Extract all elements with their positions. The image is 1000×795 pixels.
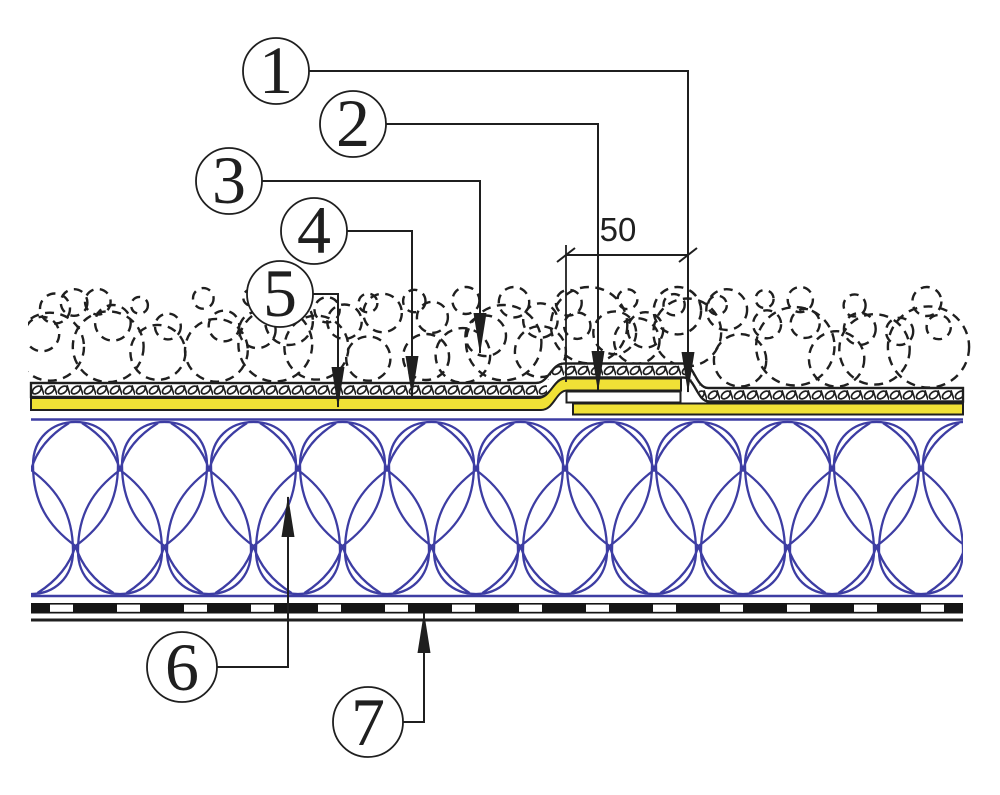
gravel-stone [708,296,727,315]
roof-construction-detail-diagram: 50 1 2 3 4 [0,0,1000,795]
gravel-stone [791,309,820,338]
gravel-stone [756,290,774,308]
diagram-canvas: 50 1 2 3 4 [0,0,1000,795]
deck-line [31,619,963,622]
callout-7: 7 [333,684,403,760]
callout-6-label: 6 [165,629,199,705]
vapor-barrier-dash [854,605,877,612]
gravel-stone [452,287,479,314]
vapor-barrier-dash [50,605,73,612]
callout-3: 3 [196,142,262,218]
gravel-stone [209,311,240,342]
callout-7-label: 7 [351,684,385,760]
gravel-stone [25,317,59,351]
leader-7 [403,613,424,722]
gravel-stone [363,294,401,332]
filter-fleece-layer [31,360,964,403]
gravel-stone [756,307,834,385]
gravel-stone [131,297,148,314]
gravel-stone [85,289,111,315]
gravel-stone [417,302,448,333]
arrowhead-7 [418,612,431,653]
callout-2: 2 [320,85,386,161]
gravel-ballast-layer [16,287,969,388]
gravel-stone [753,310,781,338]
gravel-stone [809,331,864,386]
callout-4-label: 4 [297,192,331,268]
vapor-barrier-dash [184,605,207,612]
dimension-50: 50 [557,211,697,382]
gravel-stone [465,316,506,357]
vapor-barrier-dash [720,605,743,612]
callout-3-label: 3 [212,142,246,218]
gravel-stone [403,290,425,312]
gravel-stone [359,294,378,313]
vapor-barrier-dash [586,605,609,612]
arrowhead-3 [474,313,487,354]
gravel-stone [61,289,88,316]
callout-2-label: 2 [336,85,370,161]
vapor-barrier-dash [117,605,140,612]
gravel-stone [95,305,131,341]
insulation-layer [31,419,963,597]
gravel-stone [618,289,638,309]
vapor-barrier-dash [385,605,408,612]
gravel-stone [193,288,214,309]
vapor-barrier-layer [31,603,963,614]
callout-6: 6 [147,629,217,705]
gravel-stone [927,315,951,339]
vapor-barrier-dash [251,605,274,612]
vapor-barrier-dash [452,605,475,612]
callout-1-label: 1 [259,32,293,108]
gravel-stone [346,337,390,381]
seam-overlap-tape [567,392,681,403]
vapor-barrier-dash [921,605,944,612]
gravel-stone [499,287,529,317]
vapor-barrier-dash [787,605,810,612]
vapor-barrier-dash [519,605,542,612]
membrane-lower-sheet [573,404,963,415]
vapor-barrier-dash [653,605,676,612]
gravel-stone [40,294,70,324]
gravel-stone [551,287,627,363]
callout-5-label: 5 [263,255,297,331]
callout-1: 1 [243,32,309,108]
gravel-stone [912,287,941,316]
gravel-stone [844,313,876,345]
gravel-stone [614,318,659,363]
gravel-stone [664,294,685,315]
dimension-label: 50 [600,211,637,248]
vapor-barrier-dash [318,605,341,612]
